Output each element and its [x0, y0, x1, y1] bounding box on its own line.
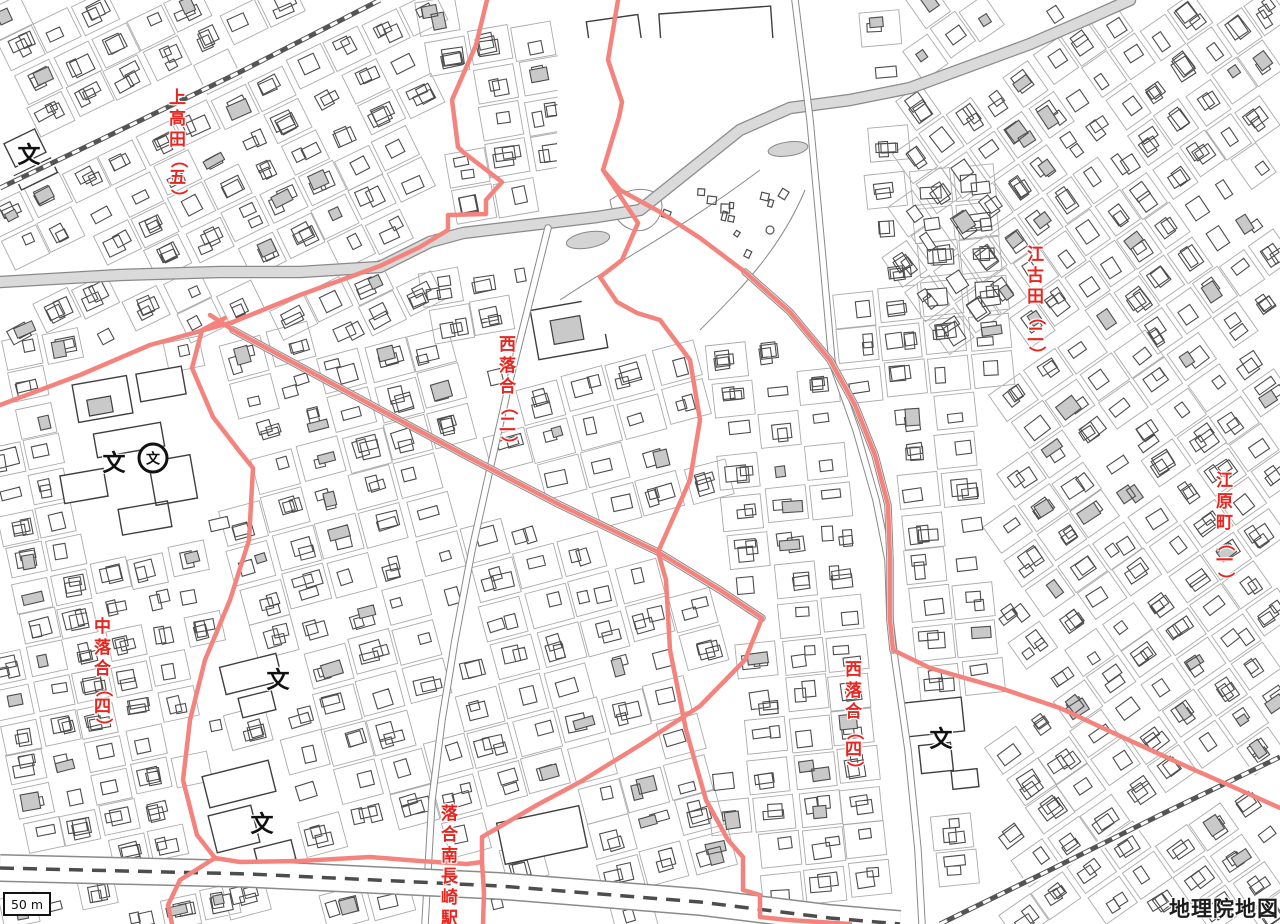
scale-bar-text: 50 m: [11, 897, 43, 912]
map-viewport[interactable]: 文文文文文文 上高田（五）江古田（二）西落合（二）江原町（一）中落合（四）西落合…: [0, 0, 1280, 924]
map-attribution[interactable]: 地理院地図: [1169, 893, 1279, 923]
map-canvas[interactable]: [0, 0, 1280, 924]
scale-bar: 50 m: [3, 892, 51, 916]
